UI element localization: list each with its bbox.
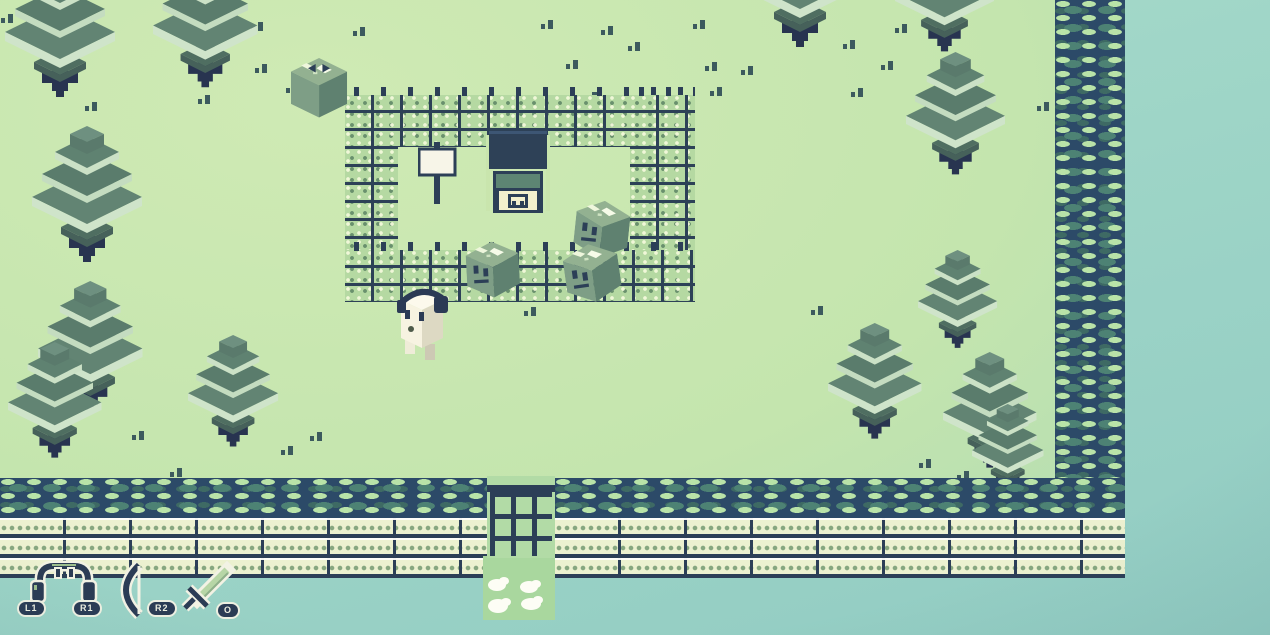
grass-speck — [258, 22, 263, 31]
gate[interactable] — [487, 476, 555, 558]
outer-wall-bricks-left — [0, 518, 487, 578]
cube-creature[interactable] — [561, 240, 623, 305]
tree — [895, 0, 994, 55]
tree — [906, 52, 1005, 178]
grass-speck — [262, 64, 267, 73]
game-viewport: L1 R1 R2 O — [0, 0, 1270, 635]
grass-speck — [818, 306, 823, 315]
tree — [32, 126, 142, 266]
tree-sprite — [906, 52, 1005, 178]
r2-button[interactable]: R2 — [147, 600, 177, 617]
grass-speck — [139, 431, 144, 440]
grass-speck — [888, 61, 893, 70]
grass-speck — [205, 95, 210, 104]
cube-creature-sprite — [291, 58, 347, 118]
tree-sprite — [895, 0, 994, 55]
grass-speck — [317, 432, 322, 441]
gate-bars — [490, 492, 552, 556]
cube-creature[interactable] — [465, 240, 521, 299]
tree — [918, 250, 997, 351]
house-sprite — [486, 131, 550, 215]
flower-patch — [483, 556, 555, 620]
grass-speck — [858, 88, 863, 97]
grass-speck — [608, 26, 613, 35]
grass-speck — [717, 87, 722, 96]
outer-wall-bricks-right — [555, 518, 1125, 578]
tree — [8, 342, 102, 461]
grass-speck — [635, 42, 640, 51]
tree-sprite — [188, 335, 278, 450]
cube-creature[interactable] — [291, 58, 347, 118]
grass-speck — [548, 20, 553, 29]
grass-speck — [748, 66, 753, 75]
grass-speck — [1044, 102, 1049, 111]
r1-button[interactable]: R1 — [72, 600, 102, 617]
tree-sprite — [32, 126, 142, 266]
cube-creature-sprite — [561, 240, 623, 305]
flowers-sprite — [483, 556, 555, 620]
grass-speck — [177, 468, 182, 477]
tree-sprite — [153, 0, 258, 91]
tree — [828, 323, 922, 442]
l1-button[interactable]: L1 — [17, 600, 46, 617]
tree — [5, 0, 115, 101]
grass-speck — [926, 459, 931, 468]
tree-sprite — [828, 323, 922, 442]
player-sprite — [397, 286, 451, 366]
tree-sprite — [5, 0, 115, 101]
player-character[interactable] — [397, 286, 451, 366]
grass-speck — [712, 62, 717, 71]
gate-lintel — [487, 485, 555, 492]
house[interactable] — [486, 131, 550, 215]
grass-speck — [531, 307, 536, 316]
tree — [188, 335, 278, 450]
grass-speck — [360, 27, 365, 36]
grass-speck — [92, 102, 97, 111]
tree-sprite — [8, 342, 102, 461]
tree-sprite — [745, 0, 855, 51]
grass-speck — [700, 20, 705, 29]
o-button[interactable]: O — [216, 602, 240, 619]
outer-wall-right — [1055, 0, 1125, 518]
outer-wall-moss-top-left — [0, 478, 487, 518]
tree-sprite — [918, 250, 997, 351]
cube-creature-sprite — [465, 240, 521, 299]
tree — [153, 0, 258, 91]
outer-wall-moss-top-right — [555, 478, 1125, 518]
sign-post[interactable] — [418, 142, 458, 208]
sign-sprite — [418, 142, 458, 208]
grass-speck — [573, 60, 578, 69]
tree — [745, 0, 855, 51]
grass-speck — [288, 446, 293, 455]
